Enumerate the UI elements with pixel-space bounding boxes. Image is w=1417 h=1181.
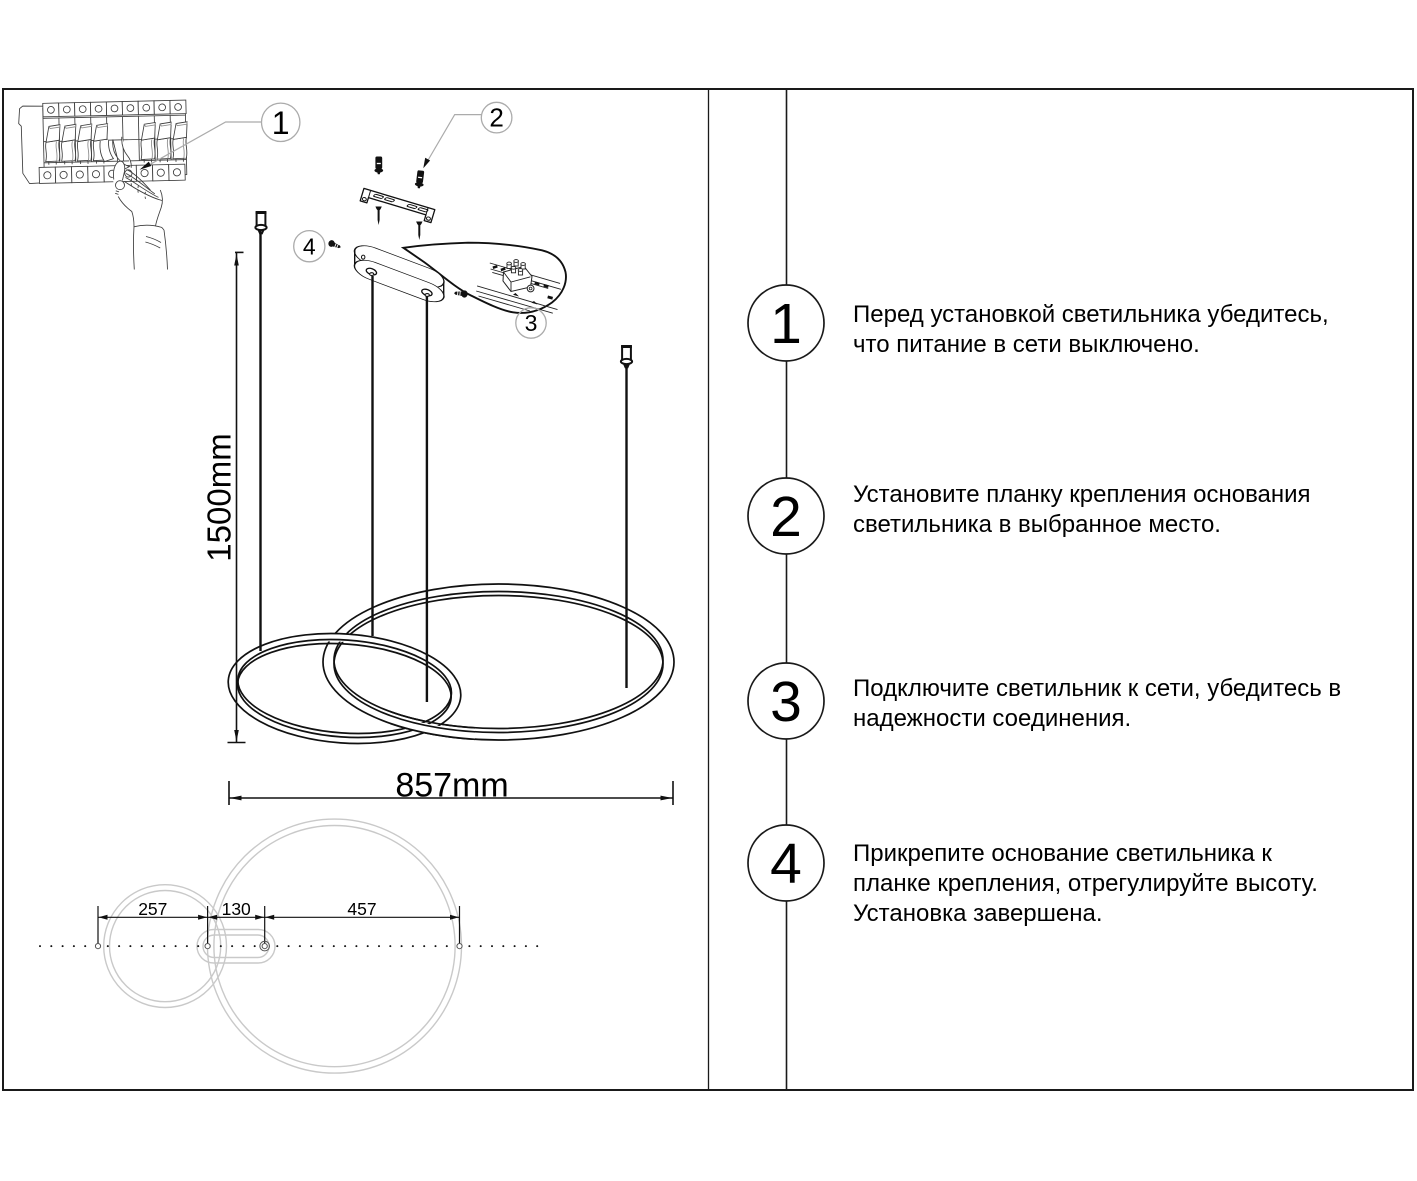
svg-text:257: 257 (138, 899, 167, 919)
svg-text:857mm: 857mm (395, 767, 508, 805)
svg-text:Установка завершена.: Установка завершена. (853, 900, 1103, 927)
svg-text:4: 4 (303, 233, 316, 259)
svg-text:457: 457 (347, 899, 376, 919)
svg-text:1: 1 (272, 105, 290, 141)
svg-text:что питание в сети выключено.: что питание в сети выключено. (853, 331, 1200, 358)
svg-text:Прикрепите основание светильни: Прикрепите основание светильника к (853, 840, 1272, 867)
svg-text:Установите планку крепления ос: Установите планку крепления основания (853, 481, 1311, 508)
svg-text:Подключите светильник к сети,: Подключите светильник к сети, убедитесь … (853, 675, 1341, 702)
svg-text:Перед установкой светильника у: Перед установкой светильника убедитесь, (853, 301, 1329, 328)
svg-text:1: 1 (770, 292, 802, 356)
svg-text:1500mm: 1500mm (201, 433, 238, 561)
svg-text:надежности соединения.: надежности соединения. (853, 705, 1131, 732)
svg-text:3: 3 (770, 670, 802, 734)
svg-text:светильника в выбранное место.: светильника в выбранное место. (853, 511, 1221, 538)
svg-text:2: 2 (489, 103, 503, 133)
svg-text:2: 2 (770, 485, 802, 549)
svg-text:130: 130 (222, 899, 251, 919)
svg-text:3: 3 (525, 310, 538, 336)
svg-text:4: 4 (770, 832, 802, 896)
svg-text:планке крепления, отрегулируйт: планке крепления, отрегулируйте высоту. (853, 870, 1318, 897)
